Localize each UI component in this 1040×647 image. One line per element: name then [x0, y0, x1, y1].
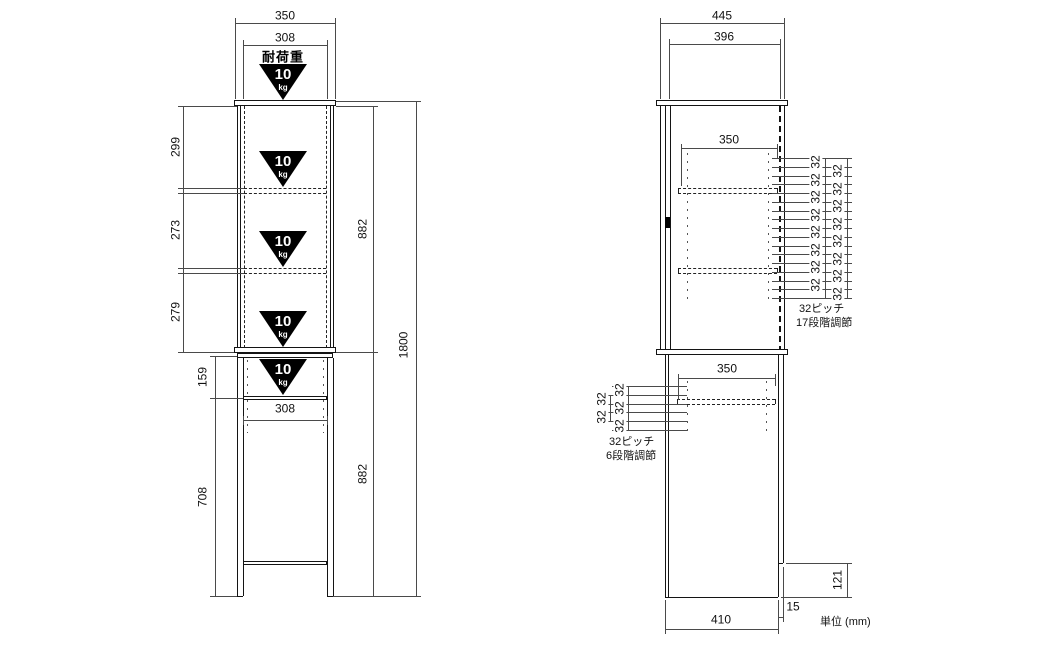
drawing-line	[330, 106, 331, 348]
load-unit: kg	[259, 83, 307, 92]
drawing-line	[681, 148, 777, 149]
drawing-line	[336, 101, 421, 102]
panel-outline	[243, 396, 327, 400]
pitch-gap-label: 32	[831, 163, 844, 178]
load-capacity-text: 10kg	[259, 231, 307, 259]
panel-outline	[656, 100, 788, 106]
pitch-gap-label: 32	[613, 418, 626, 433]
drawing-line	[336, 352, 378, 353]
drawing-line	[669, 39, 670, 99]
load-capacity-title: 耐荷重	[262, 47, 304, 66]
pitch-gap-label: 32	[613, 383, 626, 398]
pitch-note-top-line1: 32ピッチ	[799, 303, 844, 316]
drawing-canvas: 350 308 耐荷重 10kg 10kg 10kg 10kg 10kg 299…	[0, 0, 1040, 647]
units-note: 単位 (mm)	[820, 616, 871, 629]
drawing-line	[178, 188, 244, 189]
drawing-line	[237, 358, 238, 596]
hidden-line	[244, 188, 326, 189]
load-value: 10	[259, 361, 307, 378]
dim-tick	[243, 416, 244, 425]
drawing-line	[333, 358, 334, 596]
hidden-line	[244, 273, 326, 274]
drawing-line	[373, 106, 374, 596]
side-back-inset-dim: 15	[785, 600, 800, 613]
peg-hole-column	[768, 153, 769, 300]
panel-outline	[243, 561, 327, 565]
drawing-line	[336, 106, 378, 107]
drawing-line	[781, 597, 852, 598]
front-lower-height-dim: 882	[356, 463, 369, 485]
pitch-tick	[843, 158, 852, 159]
drawing-line	[243, 45, 327, 46]
drawing-line	[665, 597, 778, 598]
door-handle	[665, 217, 670, 228]
drawing-line	[783, 355, 784, 563]
dim-tick	[327, 416, 328, 425]
hidden-line	[678, 268, 777, 269]
load-capacity-badge: 10kg	[259, 64, 307, 100]
drawing-line	[778, 563, 783, 564]
side-overall-depth-dim: 445	[711, 9, 733, 22]
drawing-line	[780, 39, 781, 99]
pitch-gap-label: 32	[809, 172, 822, 187]
hidden-line	[678, 273, 777, 274]
pitch-gap-label: 32	[613, 400, 626, 415]
peg-hole-column	[766, 381, 767, 432]
drawing-line	[243, 40, 244, 99]
dim-tick	[843, 597, 852, 598]
front-overall-width-dim: 350	[274, 9, 296, 22]
hidden-line	[244, 268, 326, 269]
front-lower-shelf-width-dim: 308	[274, 402, 296, 415]
drawing-line	[178, 352, 234, 353]
hidden-line	[678, 193, 777, 194]
pitch-gap-label: 32	[831, 286, 844, 301]
load-capacity-text: 10kg	[259, 64, 307, 92]
pitch-gap-label: 32	[809, 260, 822, 275]
drawing-line	[237, 596, 243, 597]
side-lower-shelf-depth-dim: 350	[716, 362, 738, 375]
panel-outline	[656, 349, 788, 355]
pitch-gap-label: 32	[809, 155, 822, 170]
peg-hole-column	[687, 153, 688, 300]
drawing-line	[665, 600, 666, 634]
front-leg-height-dim: 708	[196, 486, 209, 508]
pitch-gap-label: 32	[831, 233, 844, 248]
drawing-line	[784, 18, 785, 99]
hidden-line	[775, 399, 776, 404]
drawing-line	[333, 596, 421, 597]
drawing-line	[183, 106, 184, 352]
drawing-line	[678, 378, 679, 400]
drawing-line	[178, 106, 237, 107]
load-capacity-text: 10kg	[259, 311, 307, 339]
drawing-line	[777, 148, 778, 158]
pitch-gap-label: 32	[809, 225, 822, 240]
front-upper-height-dim: 882	[356, 218, 369, 240]
load-value: 10	[259, 313, 307, 330]
hidden-line	[678, 188, 777, 189]
drawing-line	[665, 629, 778, 630]
drawing-line	[669, 44, 780, 45]
front-interior-width-dim: 308	[274, 31, 296, 44]
panel-outline	[237, 353, 333, 358]
load-value: 10	[259, 66, 307, 83]
pitch-gap-label: 32	[595, 392, 608, 407]
pitch-gap-label: 32	[809, 190, 822, 205]
load-capacity-badge: 10kg	[259, 311, 307, 347]
load-unit: kg	[259, 170, 307, 179]
front-section-top-dim: 299	[169, 136, 182, 158]
front-open-shelf-dim: 159	[196, 366, 209, 388]
peg-hole-column	[687, 381, 688, 432]
load-value: 10	[259, 233, 307, 250]
hidden-line	[677, 404, 775, 405]
drawing-line	[237, 106, 238, 348]
pitch-gap-label: 32	[809, 242, 822, 257]
drawing-line	[660, 18, 661, 99]
load-unit: kg	[259, 378, 307, 387]
load-unit: kg	[259, 330, 307, 339]
drawing-line	[240, 106, 241, 348]
pitch-gap-label: 32	[595, 409, 608, 424]
drawing-line	[660, 106, 661, 349]
drawing-line	[660, 23, 784, 24]
load-capacity-badge: 10kg	[259, 359, 307, 395]
drawing-line	[327, 40, 328, 99]
pitch-note-bottom-line2: 6段階調節	[606, 450, 656, 463]
pitch-gap-label: 32	[831, 268, 844, 283]
dim-tick	[778, 613, 779, 622]
side-base-depth-dim: 410	[710, 613, 732, 626]
hidden-line	[244, 193, 326, 194]
drawing-line	[178, 268, 244, 269]
load-capacity-text: 10kg	[259, 151, 307, 179]
pitch-gap-label: 32	[831, 198, 844, 213]
drawing-line	[178, 273, 244, 274]
front-section-middle-dim: 273	[169, 219, 182, 241]
drawing-line	[335, 18, 336, 99]
dim-tick	[843, 563, 852, 564]
load-capacity-text: 10kg	[259, 359, 307, 387]
load-capacity-badge: 10kg	[259, 151, 307, 187]
front-total-height-dim: 1800	[397, 331, 410, 360]
load-value: 10	[259, 153, 307, 170]
hidden-line	[677, 399, 775, 400]
panel-outline	[234, 100, 336, 106]
pitch-note-bottom-line1: 32ピッチ	[609, 436, 654, 449]
drawing-line	[678, 378, 775, 379]
pitch-gap-label: 32	[831, 251, 844, 266]
drawing-line	[847, 563, 848, 597]
hidden-line	[678, 188, 679, 193]
dim-tick	[783, 613, 784, 622]
drawing-line	[210, 596, 237, 597]
pitch-note-top-line2: 17段階調節	[796, 317, 852, 330]
side-interior-depth-dim: 396	[713, 30, 735, 43]
hidden-line	[678, 268, 679, 273]
drawing-line	[178, 193, 244, 194]
pitch-dim-line	[628, 386, 629, 430]
drawing-line	[243, 420, 327, 421]
drawing-line	[235, 18, 236, 99]
load-capacity-badge: 10kg	[259, 231, 307, 267]
hidden-line	[244, 106, 245, 348]
drawing-line	[775, 378, 776, 386]
side-upper-shelf-depth-dim: 350	[718, 133, 740, 146]
drawing-line	[327, 358, 328, 596]
side-base-notch-height-dim: 121	[831, 569, 844, 591]
pitch-gap-label: 32	[831, 216, 844, 231]
drawing-line	[668, 355, 669, 597]
pitch-gap-label: 32	[831, 181, 844, 196]
front-section-bottom-dim: 279	[169, 301, 182, 323]
drawing-line	[416, 101, 417, 596]
drawing-line	[210, 356, 237, 357]
hidden-line	[326, 106, 327, 348]
drawing-line	[235, 23, 335, 24]
load-unit: kg	[259, 250, 307, 259]
drawing-line	[665, 355, 666, 597]
pitch-tick	[821, 298, 830, 299]
drawing-line	[778, 355, 779, 597]
drawing-line	[681, 148, 682, 186]
pitch-dim-line	[610, 395, 611, 421]
drawing-line	[333, 106, 334, 348]
pitch-gap-label: 32	[809, 277, 822, 292]
drawing-line	[215, 356, 216, 596]
drawing-line	[210, 398, 243, 399]
drawing-line	[670, 106, 671, 349]
dim-tick	[778, 625, 779, 634]
pitch-gap-label: 32	[809, 207, 822, 222]
